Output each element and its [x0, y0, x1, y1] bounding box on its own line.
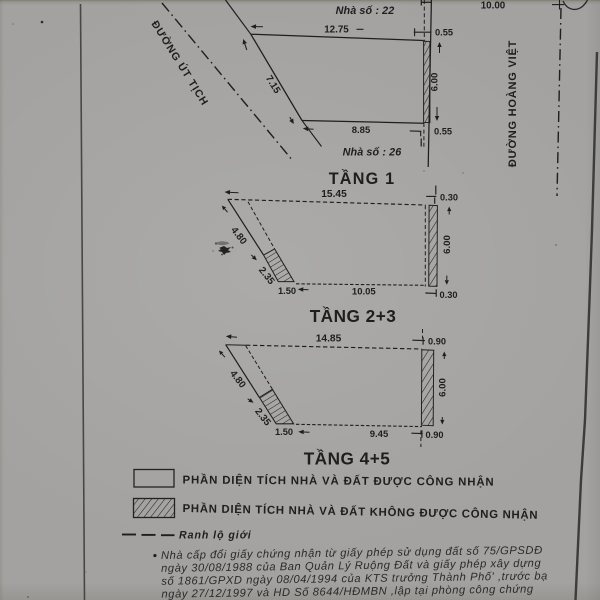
svg-text:Nhà số : 26: Nhà số : 26 — [343, 147, 403, 159]
svg-text:0.55: 0.55 — [434, 127, 452, 137]
svg-text:PHẦN DIỆN TÍCH NHÀ VÀ ĐẤT KHÔ: PHẦN DIỆN TÍCH NHÀ VÀ ĐẤT KHÔNG ĐƯỢC CÔN… — [182, 502, 538, 522]
svg-text:ĐƯỜNG ÚT TỊCH: ĐƯỜNG ÚT TỊCH — [149, 18, 212, 108]
svg-text:4.80: 4.80 — [227, 369, 248, 391]
svg-text:Nhà số : 22: Nhà số : 22 — [336, 5, 395, 17]
svg-text:ĐƯỜNG HOÀNG VIỆT: ĐƯỜNG HOÀNG VIỆT — [506, 40, 519, 167]
svg-text:10.05: 10.05 — [352, 287, 376, 298]
svg-text:TẦNG 2+3: TẦNG 2+3 — [310, 306, 397, 326]
svg-text:7.15: 7.15 — [263, 74, 283, 96]
svg-text:8.85: 8.85 — [352, 125, 371, 136]
svg-text:TẦNG 4+5: TẦNG 4+5 — [304, 449, 391, 469]
svg-text:PHẦN DIỆN TÍCH NHÀ VÀ ĐẤT ĐƯỢ: PHẦN DIỆN TÍCH NHÀ VÀ ĐẤT ĐƯỢC CÔNG NHẬN — [182, 474, 494, 489]
svg-text:0.30: 0.30 — [440, 193, 458, 203]
svg-text:Ranh lộ giới: Ranh lộ giới — [179, 530, 252, 542]
svg-text:0.30: 0.30 — [440, 290, 458, 300]
svg-text:14.85: 14.85 — [316, 334, 342, 345]
svg-text:9.45: 9.45 — [370, 429, 389, 440]
svg-text:6.00: 6.00 — [442, 235, 453, 254]
svg-text:6.00: 6.00 — [438, 378, 449, 397]
svg-text:1.50: 1.50 — [278, 286, 296, 296]
svg-text:0.90: 0.90 — [428, 336, 446, 346]
svg-text:12.75: 12.75 — [324, 24, 349, 35]
svg-text:15.45: 15.45 — [321, 189, 347, 200]
svg-text:1.50: 1.50 — [275, 427, 293, 437]
svg-text:10.00: 10.00 — [481, 1, 506, 12]
svg-text:0.90: 0.90 — [426, 430, 444, 440]
svg-text:TẦNG 1: TẦNG 1 — [329, 169, 396, 188]
svg-text:0.55: 0.55 — [435, 28, 453, 38]
svg-text:6.00: 6.00 — [430, 73, 441, 92]
